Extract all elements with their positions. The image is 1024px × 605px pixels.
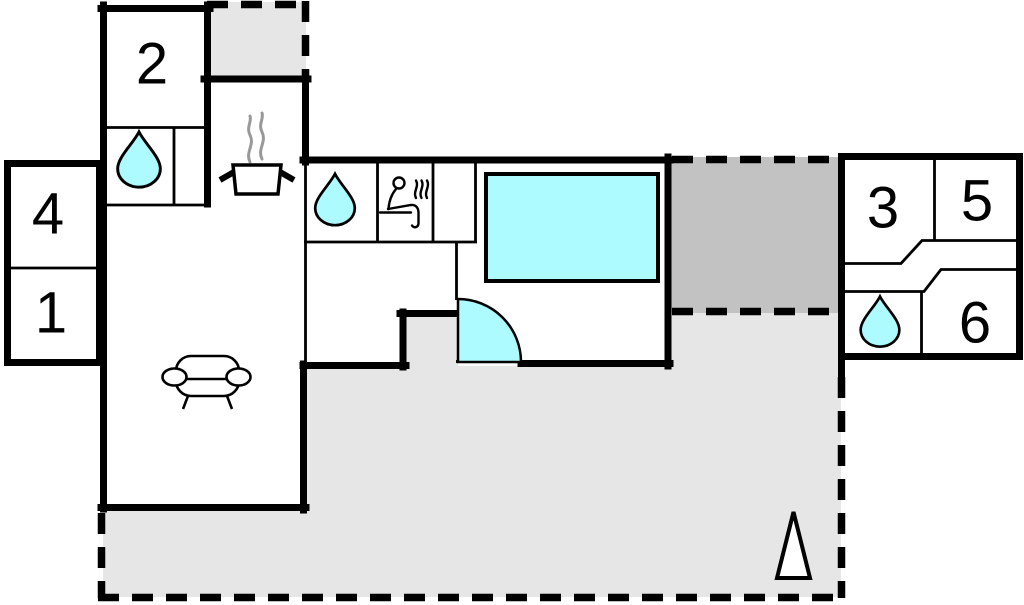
sauna-steam <box>426 181 428 199</box>
entry-patio <box>207 2 306 79</box>
wall-corridor-upper-zigzag <box>845 241 1016 264</box>
sofa-leg-right <box>227 396 232 409</box>
steam-wave <box>261 113 264 159</box>
sofa-arm-right <box>227 369 251 386</box>
steam-wave <box>249 116 252 162</box>
sofa-leg-left <box>183 396 188 409</box>
sauna-person-leg <box>388 205 419 227</box>
pot-handle-right <box>280 172 294 180</box>
room-label-6: 6 <box>959 291 991 356</box>
water-drop-shape <box>861 296 900 346</box>
floor-plan: 2 4 1 3 5 6 <box>0 0 1024 605</box>
sofa-icon <box>163 356 251 409</box>
water-drop-shape <box>315 174 355 225</box>
pot-handle-left <box>220 172 234 180</box>
water-drop-icon <box>315 174 355 225</box>
stove-icon <box>220 113 294 194</box>
sofa-arm-left <box>163 369 187 386</box>
water-drop-shape <box>118 132 161 187</box>
sauna-person-head <box>394 178 405 189</box>
room-label-5: 5 <box>961 169 993 234</box>
covered-terrace-floor <box>668 157 842 313</box>
pot-body <box>233 165 281 194</box>
room-label-3: 3 <box>867 176 899 241</box>
sauna-steam <box>420 181 422 199</box>
door-swing-icon <box>458 299 521 362</box>
door-swing-arc <box>458 299 521 362</box>
room-label-1: 1 <box>35 281 67 346</box>
pool-water <box>486 174 658 281</box>
sauna-steam <box>415 181 417 199</box>
water-drop-icon <box>861 296 900 346</box>
sauna-icon <box>380 178 428 228</box>
water-drop-icon <box>118 132 161 187</box>
wall-corridor-lower-zigzag <box>845 270 1016 292</box>
pool <box>486 174 658 281</box>
patio-floor <box>207 2 306 79</box>
floor-plan-svg: 2 4 1 3 5 6 <box>0 0 1024 605</box>
covered-terrace <box>668 157 842 313</box>
room-label-2: 2 <box>136 32 168 97</box>
sauna-person-body <box>389 189 397 209</box>
room-label-4: 4 <box>32 182 64 247</box>
